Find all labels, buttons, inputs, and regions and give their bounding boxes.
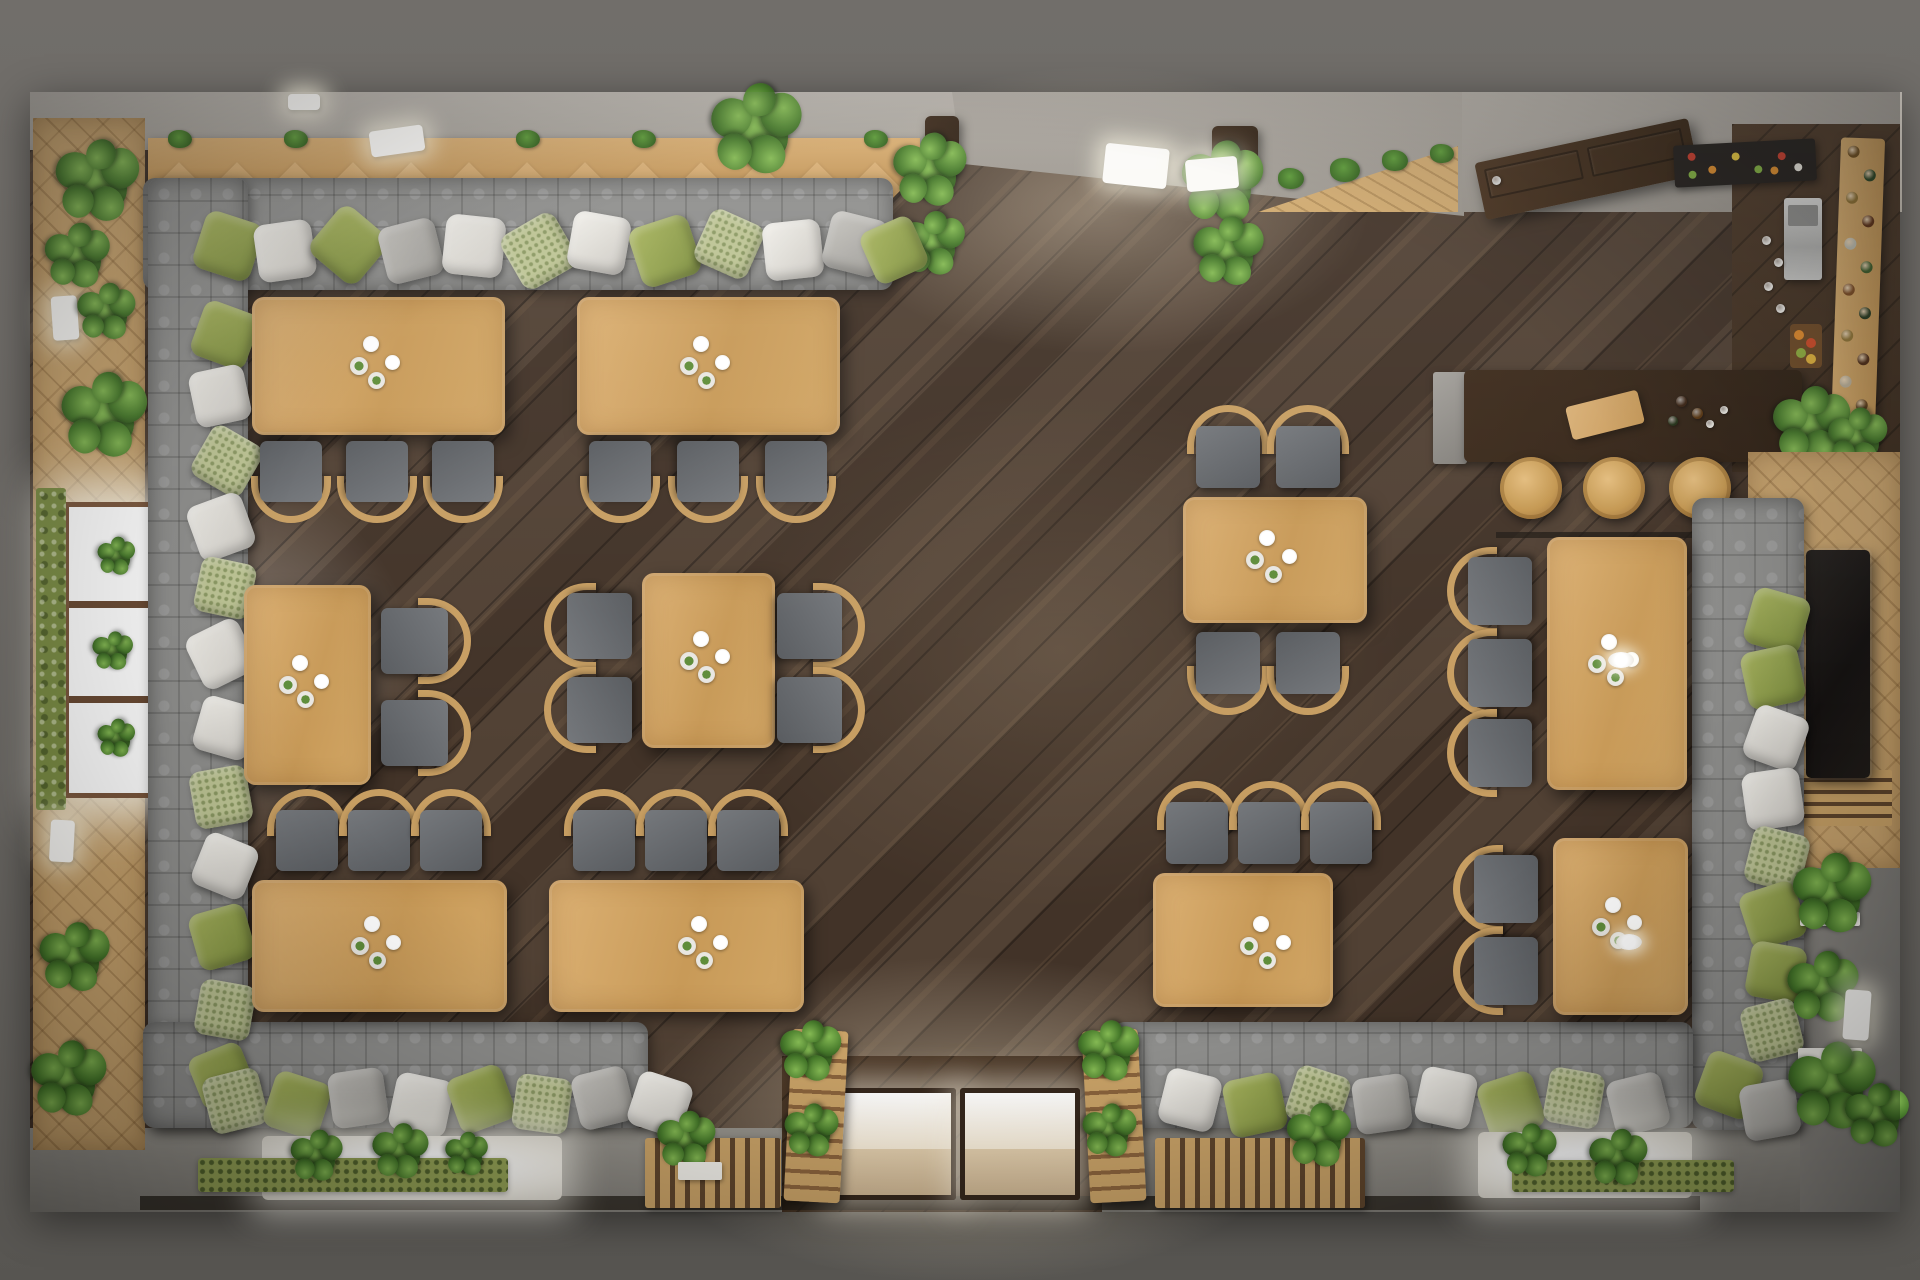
dining-table (642, 573, 775, 748)
plant-pot (297, 691, 314, 708)
pillow (252, 218, 318, 284)
plate (1259, 530, 1275, 546)
wall-sconce (49, 819, 75, 862)
moss (1330, 158, 1360, 182)
chair-seat (777, 677, 843, 744)
render-frame (0, 0, 1920, 1280)
pillow (326, 1066, 389, 1129)
moss (1430, 144, 1454, 163)
floor-plan-render (0, 0, 1920, 1280)
menu-art (1731, 152, 1739, 160)
chair (1234, 790, 1304, 866)
plate (1605, 897, 1621, 913)
chair-seat (1310, 802, 1372, 864)
tv-screen (1806, 550, 1870, 778)
chair-seat (765, 441, 827, 502)
plant-pot (698, 666, 715, 683)
bottle (1864, 169, 1876, 181)
bottle (1841, 329, 1853, 341)
menu-art (1688, 171, 1696, 179)
fruit-bowl (1790, 324, 1822, 368)
chair (641, 798, 711, 872)
dining-table (1183, 497, 1367, 623)
glass (1774, 258, 1783, 267)
window-mullion (69, 696, 155, 703)
plate (314, 674, 329, 689)
glass (1706, 420, 1714, 428)
pendant-light (1608, 652, 1634, 668)
wall-planter-box (1798, 1048, 1862, 1062)
plant-pot (1259, 952, 1276, 969)
fruit (1796, 348, 1806, 358)
plant-pot (1265, 566, 1282, 583)
plant-pot (1588, 655, 1606, 673)
chair (761, 440, 831, 514)
door-glass-glow (965, 1093, 1075, 1149)
menu-art (1794, 163, 1802, 171)
chair (428, 440, 498, 514)
runner-right (1512, 1160, 1734, 1192)
pillow (510, 1072, 573, 1135)
plate (713, 935, 728, 950)
pillow (1739, 643, 1808, 712)
plate (292, 655, 308, 671)
chair (342, 440, 412, 514)
chair-seat (1166, 802, 1228, 864)
chair (1456, 634, 1534, 712)
bottle (1846, 192, 1858, 204)
chair (775, 672, 855, 748)
door-inset-panel (1587, 128, 1687, 177)
plate (364, 916, 380, 932)
dining-table (1153, 873, 1333, 1007)
chair-seat (567, 593, 633, 660)
chair (379, 695, 461, 771)
bottle (1860, 261, 1872, 273)
bar-pillar (1433, 372, 1467, 464)
entrance-door (828, 1088, 956, 1200)
pillow (1740, 766, 1806, 832)
chair (344, 798, 414, 872)
plant-pot (351, 937, 369, 955)
books (678, 1162, 722, 1180)
menu-art (1687, 153, 1695, 161)
bottle (1859, 307, 1871, 319)
plate (715, 355, 730, 370)
chair (1456, 714, 1534, 792)
door-handle (1492, 176, 1501, 185)
plant-pot (680, 357, 698, 375)
bottle (1692, 408, 1703, 419)
menu-art (1770, 166, 1778, 174)
bottle (1839, 375, 1851, 387)
plant-pot (678, 937, 696, 955)
moss-clump (748, 130, 772, 148)
wall-sconce (1842, 989, 1871, 1041)
pillow (1221, 1071, 1290, 1140)
glass (1762, 236, 1771, 245)
tall-planter (784, 1029, 849, 1204)
plate (386, 935, 401, 950)
plant-pot (1240, 937, 1258, 955)
chair-seat (677, 441, 739, 502)
plate (1282, 549, 1297, 564)
plate (1276, 935, 1291, 950)
chair-seat (348, 810, 410, 871)
bottle (1847, 146, 1859, 158)
pillow (1350, 1072, 1413, 1135)
ceiling-light (288, 94, 320, 110)
chair (673, 440, 743, 514)
chair (713, 798, 783, 872)
glass (1720, 406, 1728, 414)
fruit (1806, 338, 1816, 348)
plant-pot (680, 652, 698, 670)
plant-pot (1592, 918, 1610, 936)
chair-seat (777, 593, 843, 660)
chair-seat (589, 441, 651, 502)
glass (1764, 282, 1773, 291)
chair-seat (1238, 802, 1300, 864)
bar-stool (1583, 457, 1645, 519)
runner-left (198, 1158, 508, 1192)
plant-pot (696, 952, 713, 969)
fruit (1806, 354, 1816, 364)
booth-table (1553, 838, 1688, 1015)
dining-table (244, 585, 371, 785)
chair (1306, 790, 1376, 866)
machine-top (1788, 205, 1818, 226)
chair-seat (1196, 632, 1259, 694)
dining-table (549, 880, 804, 1012)
wall-planter-box (1800, 912, 1860, 926)
bottle (1843, 283, 1855, 295)
chair (1162, 790, 1232, 866)
plate (693, 631, 709, 647)
chair (1462, 932, 1540, 1010)
chair-seat (567, 677, 633, 744)
pillow (193, 978, 258, 1043)
moss-clump (168, 130, 192, 148)
plate (363, 336, 379, 352)
planter-box (925, 116, 959, 174)
chair (1272, 630, 1344, 706)
chair (416, 798, 486, 872)
window-mullion (69, 601, 155, 608)
chair-seat (381, 608, 448, 675)
chair-seat (1468, 639, 1532, 708)
plate (715, 649, 730, 664)
menu-art (1708, 166, 1716, 174)
plate (1627, 915, 1642, 930)
plant-pot (1607, 669, 1624, 686)
moss-clump (632, 130, 656, 148)
bottle (1844, 238, 1856, 250)
pendant-light (1616, 934, 1642, 950)
chair (1272, 414, 1344, 490)
moss (1382, 150, 1408, 171)
plant-pot (1246, 551, 1264, 569)
chair (554, 672, 634, 748)
door-mat (833, 1149, 951, 1195)
bottle (1856, 399, 1868, 411)
chair (1192, 630, 1264, 706)
moss-clump (516, 130, 540, 148)
tall-planter (1082, 1029, 1147, 1204)
moss-clump (864, 130, 888, 148)
moss-clump (284, 130, 308, 148)
wall-sconce (50, 295, 79, 341)
pillow (1738, 1078, 1803, 1143)
pillow (1413, 1065, 1479, 1131)
entrance-door (960, 1088, 1080, 1200)
glass (1776, 304, 1785, 313)
chair (585, 440, 655, 514)
chair-seat (432, 441, 494, 502)
chair (272, 798, 342, 872)
chair-seat (420, 810, 482, 871)
chair-seat (1474, 937, 1538, 1006)
chair (1456, 552, 1534, 630)
pillow (565, 209, 632, 276)
chair (569, 798, 639, 872)
wall-lamp (1102, 143, 1170, 189)
plant-pot (368, 372, 385, 389)
window-curtain (36, 488, 66, 810)
moss (1278, 168, 1304, 189)
plant-pot (698, 372, 715, 389)
bottle (1676, 396, 1687, 407)
chair-seat (645, 810, 707, 871)
bottle (1668, 416, 1678, 426)
chair (1462, 850, 1540, 928)
plant-pot (279, 676, 297, 694)
chair (554, 588, 634, 664)
chair-seat (1468, 557, 1532, 626)
chair-seat (381, 700, 448, 767)
menu-art (1754, 165, 1762, 173)
chair-seat (1474, 855, 1538, 924)
plate (1601, 634, 1617, 650)
pillow (387, 1071, 456, 1140)
chair-seat (260, 441, 322, 502)
chair-seat (573, 810, 635, 871)
bar-stool (1500, 457, 1562, 519)
chair (1192, 414, 1264, 490)
slat-bench-right (1155, 1138, 1365, 1208)
dining-table (252, 297, 505, 435)
fruit (1794, 330, 1804, 340)
plant-pot (350, 357, 368, 375)
chair (379, 603, 461, 679)
dining-table (252, 880, 507, 1012)
coffee-machine (1784, 198, 1822, 280)
pillow (1744, 940, 1809, 1005)
bottle (1857, 353, 1869, 365)
chair-seat (717, 810, 779, 871)
chair-seat (1276, 632, 1339, 694)
wall-lamp (1185, 156, 1240, 192)
left-window (64, 502, 160, 798)
chair-seat (1468, 719, 1532, 788)
plate (385, 355, 400, 370)
chair-seat (1276, 426, 1339, 488)
bottle (1862, 215, 1874, 227)
door-inset-panel (1484, 150, 1584, 199)
door-mat (965, 1149, 1075, 1195)
chair (775, 588, 855, 664)
chair (256, 440, 326, 514)
pillow (1542, 1066, 1607, 1131)
pillow (187, 363, 253, 429)
plate (1253, 916, 1269, 932)
pillow (441, 213, 507, 279)
chair-seat (276, 810, 338, 871)
menu-art (1777, 152, 1785, 160)
door-glass-glow (833, 1093, 951, 1149)
chair-seat (346, 441, 408, 502)
menu-board (1673, 138, 1817, 187)
slat-accent (1800, 770, 1892, 826)
pillow (761, 218, 825, 282)
chair-seat (1196, 426, 1259, 488)
dining-table (577, 297, 840, 435)
plant-pot (369, 952, 386, 969)
plate (693, 336, 709, 352)
plate (691, 916, 707, 932)
